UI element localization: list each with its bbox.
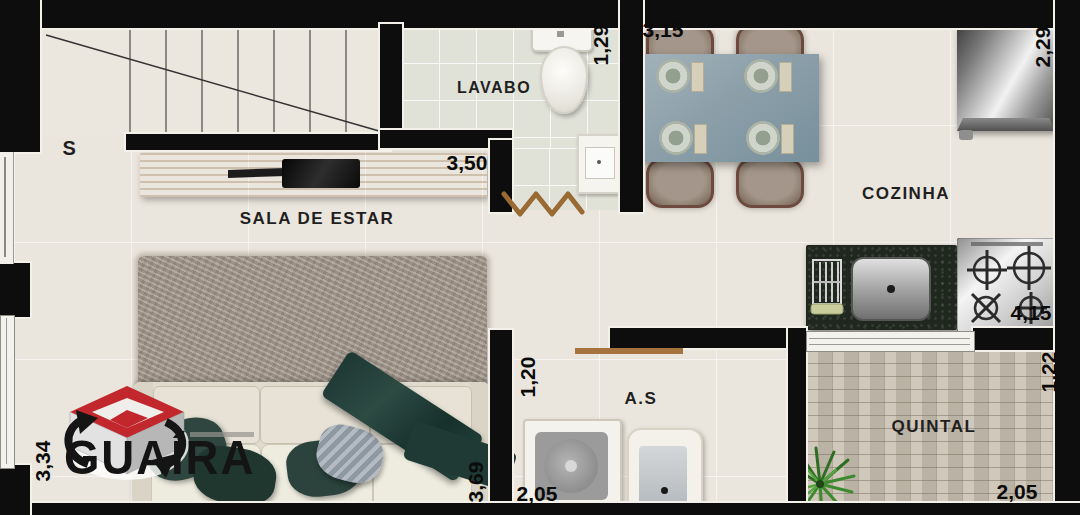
label-sala-de-estar: SALA DE ESTAR (237, 207, 397, 231)
washer-drum-cap (565, 460, 577, 472)
staircase-treads (42, 29, 390, 137)
accordion-door (500, 190, 586, 218)
logo-wordmark: GUAÍRA (64, 430, 255, 485)
kitchen-sink (851, 257, 931, 321)
kitchen-sink-drain (887, 285, 895, 293)
front-door-leaf (4, 157, 6, 257)
dim-cozinha-length: 4,15 (1001, 300, 1061, 326)
wall-right (1055, 0, 1080, 515)
washbasin (577, 134, 625, 194)
dim-lavabo-depth: 1,29 (588, 15, 614, 75)
cozinha-quintal-window (806, 331, 975, 352)
refrigerator-handle (959, 130, 973, 140)
dim-dining-width: 3,15 (633, 17, 693, 43)
tank-basin (639, 446, 687, 504)
wall-top (0, 0, 1080, 28)
wall-stairs-bottom (126, 134, 390, 150)
dim-quintal-width: 2,05 (987, 479, 1047, 505)
place-setting (744, 59, 778, 93)
napkin-cutlery (691, 62, 704, 92)
wall-servico-top (610, 328, 790, 348)
wall-left-mid (0, 263, 30, 317)
label-quintal: QUINTAL (854, 415, 1014, 439)
floor-plan: S LAVABO SALA DE ESTAR COZINHA A.S QUINT… (0, 0, 1080, 515)
laundry-shelf (575, 348, 683, 354)
sala-window-left (0, 315, 15, 469)
tank-drain (661, 487, 668, 494)
dim-servico-width: 2,05 (507, 481, 567, 507)
place-setting (659, 121, 693, 155)
dim-cozinha-depth: 2,29 (1030, 17, 1056, 77)
window-glass-line (809, 338, 970, 339)
dish-rack (810, 258, 844, 316)
staircase (42, 29, 390, 137)
dining-chair (736, 158, 804, 208)
wall-servico-quintal (788, 328, 806, 515)
napkin-cutlery (694, 124, 707, 154)
wall-lavabo-left (380, 24, 402, 140)
logo: GUAÍRA (40, 378, 340, 508)
dim-quintal-depth: 1,22 (1036, 342, 1062, 402)
washbasin-drain (597, 160, 601, 164)
wall-left-top (0, 0, 40, 152)
toilet-tank-button (557, 31, 564, 37)
window-glass-line (6, 318, 7, 464)
dining-chair (646, 158, 714, 208)
tv (282, 159, 360, 188)
dim-sala-width: 3,50 (437, 150, 497, 176)
napkin-cutlery (779, 62, 792, 92)
label-stairs: S (58, 136, 82, 160)
laundry-tank (627, 428, 703, 515)
label-cozinha: COZINHA (826, 182, 986, 206)
dim-sala-depth-right: 3,69 (463, 452, 489, 512)
rug (138, 256, 487, 388)
label-lavabo: LAVABO (414, 76, 574, 100)
place-setting (746, 121, 780, 155)
dim-servico-depth: 1,20 (515, 347, 541, 407)
refrigerator-base (957, 118, 1055, 131)
napkin-cutlery (781, 124, 794, 154)
place-setting (656, 59, 690, 93)
label-area-servico: A.S (561, 387, 721, 411)
window-glass-line (809, 344, 970, 345)
front-door-opening (0, 152, 14, 264)
wall-left-bottom (0, 465, 30, 515)
